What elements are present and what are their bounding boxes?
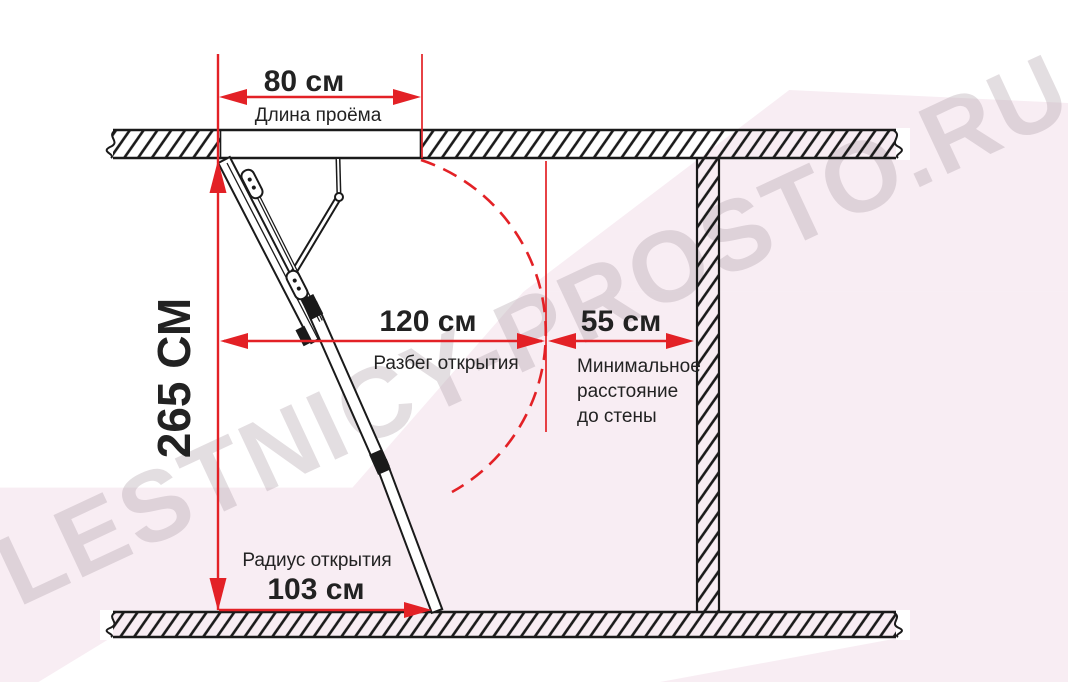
ladder-section-3 — [376, 460, 442, 613]
dim-55-arrow-left — [548, 333, 576, 349]
dim-55-arrow-right — [666, 333, 694, 349]
dim-height-value: 265 СМ — [148, 298, 200, 458]
ceiling-opening — [220, 129, 421, 159]
wall — [697, 158, 719, 612]
diagram-canvas: LESTNICY-PROSTO.RU — [0, 0, 1068, 682]
ladder-section-2 — [306, 303, 389, 471]
dim-opening-label: Длина проёма — [255, 105, 382, 126]
ceiling — [100, 128, 910, 160]
floor-hatch — [112, 613, 896, 637]
dim-opening-value: 80 см — [264, 65, 345, 98]
ladder-diagram-svg: 80 см Длина проёма 265 СМ 120 см Разбег … — [0, 0, 1068, 682]
dim-radius-value: 103 см — [267, 573, 364, 606]
dim-radius-label: Радиус открытия — [242, 550, 391, 571]
dim-wall-value: 55 см — [581, 305, 662, 338]
dim-120-arrow-left — [220, 333, 248, 349]
dim-80-arrow-right — [393, 89, 421, 105]
dim-wall-label-line3: до стены — [577, 406, 657, 427]
dim-120-arrow-right — [517, 333, 545, 349]
dim-run-label: Разбег открытия — [373, 353, 518, 374]
attic-ladder — [218, 157, 442, 613]
dim-265-arrow-down — [210, 578, 227, 611]
dim-wall-label-line1: Минимальное — [577, 356, 701, 377]
dim-wall-label-line2: расстояние — [577, 381, 678, 402]
floor — [100, 610, 910, 640]
dim-80-arrow-left — [219, 89, 247, 105]
wall-hatch — [697, 158, 719, 612]
dim-run-value: 120 см — [379, 305, 476, 338]
